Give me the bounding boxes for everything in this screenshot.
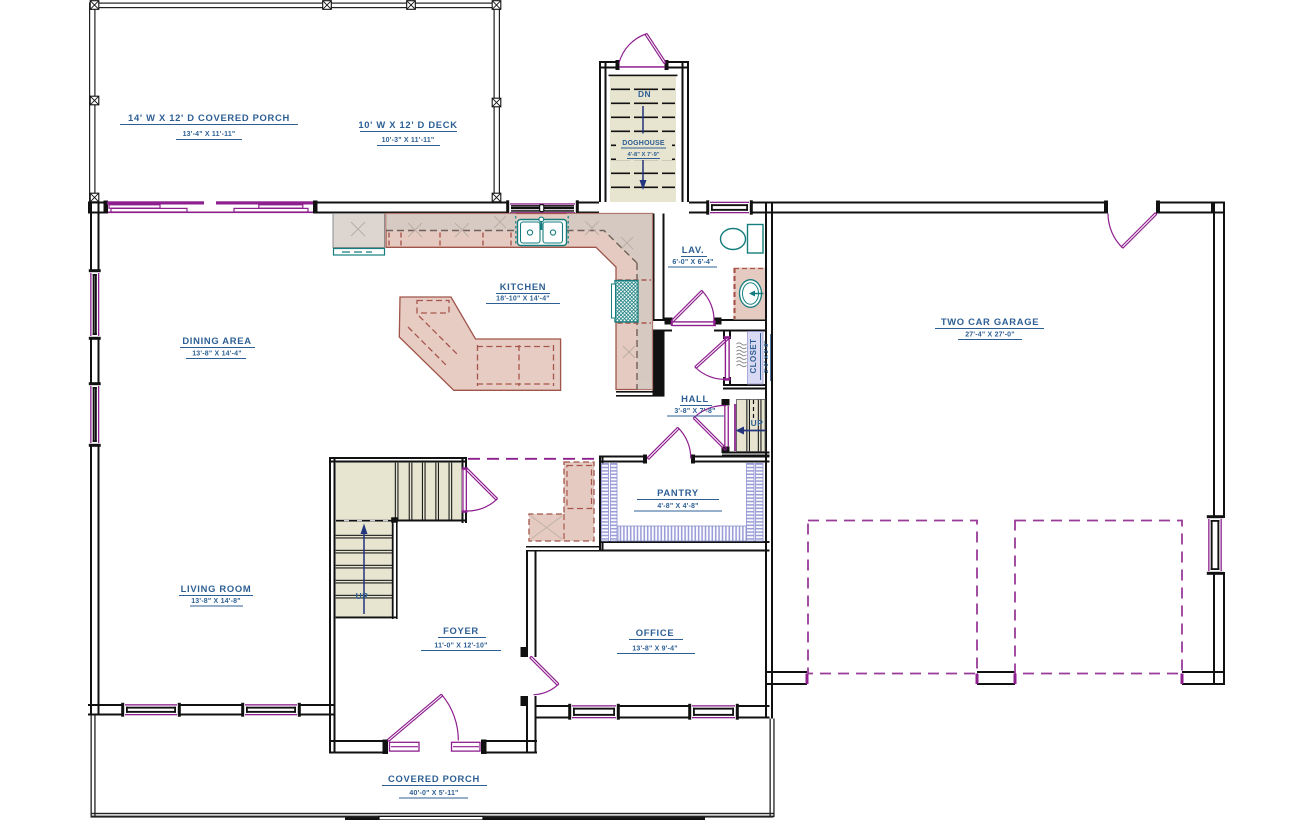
svg-text:10' W X 12' D DECK: 10' W X 12' D DECK (358, 119, 457, 130)
svg-text:13'-8" X 9'-4": 13'-8" X 9'-4" (632, 646, 677, 653)
svg-text:LIVING ROOM: LIVING ROOM (181, 583, 252, 594)
svg-text:UP: UP (751, 418, 764, 428)
svg-text:13'-8" X 14'-4": 13'-8" X 14'-4" (192, 351, 242, 358)
svg-text:OFFICE: OFFICE (636, 627, 675, 638)
svg-text:TWO CAR GARAGE: TWO CAR GARAGE (941, 316, 1039, 327)
svg-text:4'-8" X 4'-8": 4'-8" X 4'-8" (657, 503, 698, 510)
svg-text:PANTRY: PANTRY (657, 487, 699, 498)
svg-text:10'-3" X 11'-11": 10'-3" X 11'-11" (382, 137, 435, 144)
svg-text:UP: UP (356, 591, 369, 601)
svg-text:3'-8" X 7'-8": 3'-8" X 7'-8" (674, 408, 715, 415)
svg-text:13'-4" X 11'-11": 13'-4" X 11'-11" (183, 131, 236, 138)
svg-text:6'-0" X 6'-4": 6'-0" X 6'-4" (672, 259, 713, 266)
svg-text:4'-8" X 7'-9": 4'-8" X 7'-9" (627, 152, 659, 158)
svg-text:CLOSET: CLOSET (749, 339, 758, 374)
svg-text:DOGHOUSE: DOGHOUSE (622, 140, 665, 147)
svg-text:DINING AREA: DINING AREA (182, 335, 251, 346)
svg-text:27'-4" X 27'-0": 27'-4" X 27'-0" (965, 332, 1015, 339)
svg-text:FOYER: FOYER (443, 625, 479, 636)
svg-text:18'-10" X 14'-4": 18'-10" X 14'-4" (496, 296, 550, 303)
svg-text:COVERED PORCH: COVERED PORCH (388, 773, 480, 784)
svg-text:11'-0" X 12'-10": 11'-0" X 12'-10" (434, 643, 487, 650)
svg-text:14' W X 12' D COVERED PORCH: 14' W X 12' D COVERED PORCH (128, 112, 290, 123)
svg-text:40'-0" X 5'-11": 40'-0" X 5'-11" (409, 790, 458, 797)
svg-text:13'-8" X 14'-8": 13'-8" X 14'-8" (191, 598, 241, 605)
svg-text:DN: DN (638, 89, 651, 99)
svg-text:HALL: HALL (681, 393, 709, 404)
svg-text:2'-0" X 3'-8": 2'-0" X 3'-8" (764, 341, 770, 373)
svg-text:KITCHEN: KITCHEN (500, 281, 547, 292)
svg-text:LAV.: LAV. (682, 244, 705, 255)
